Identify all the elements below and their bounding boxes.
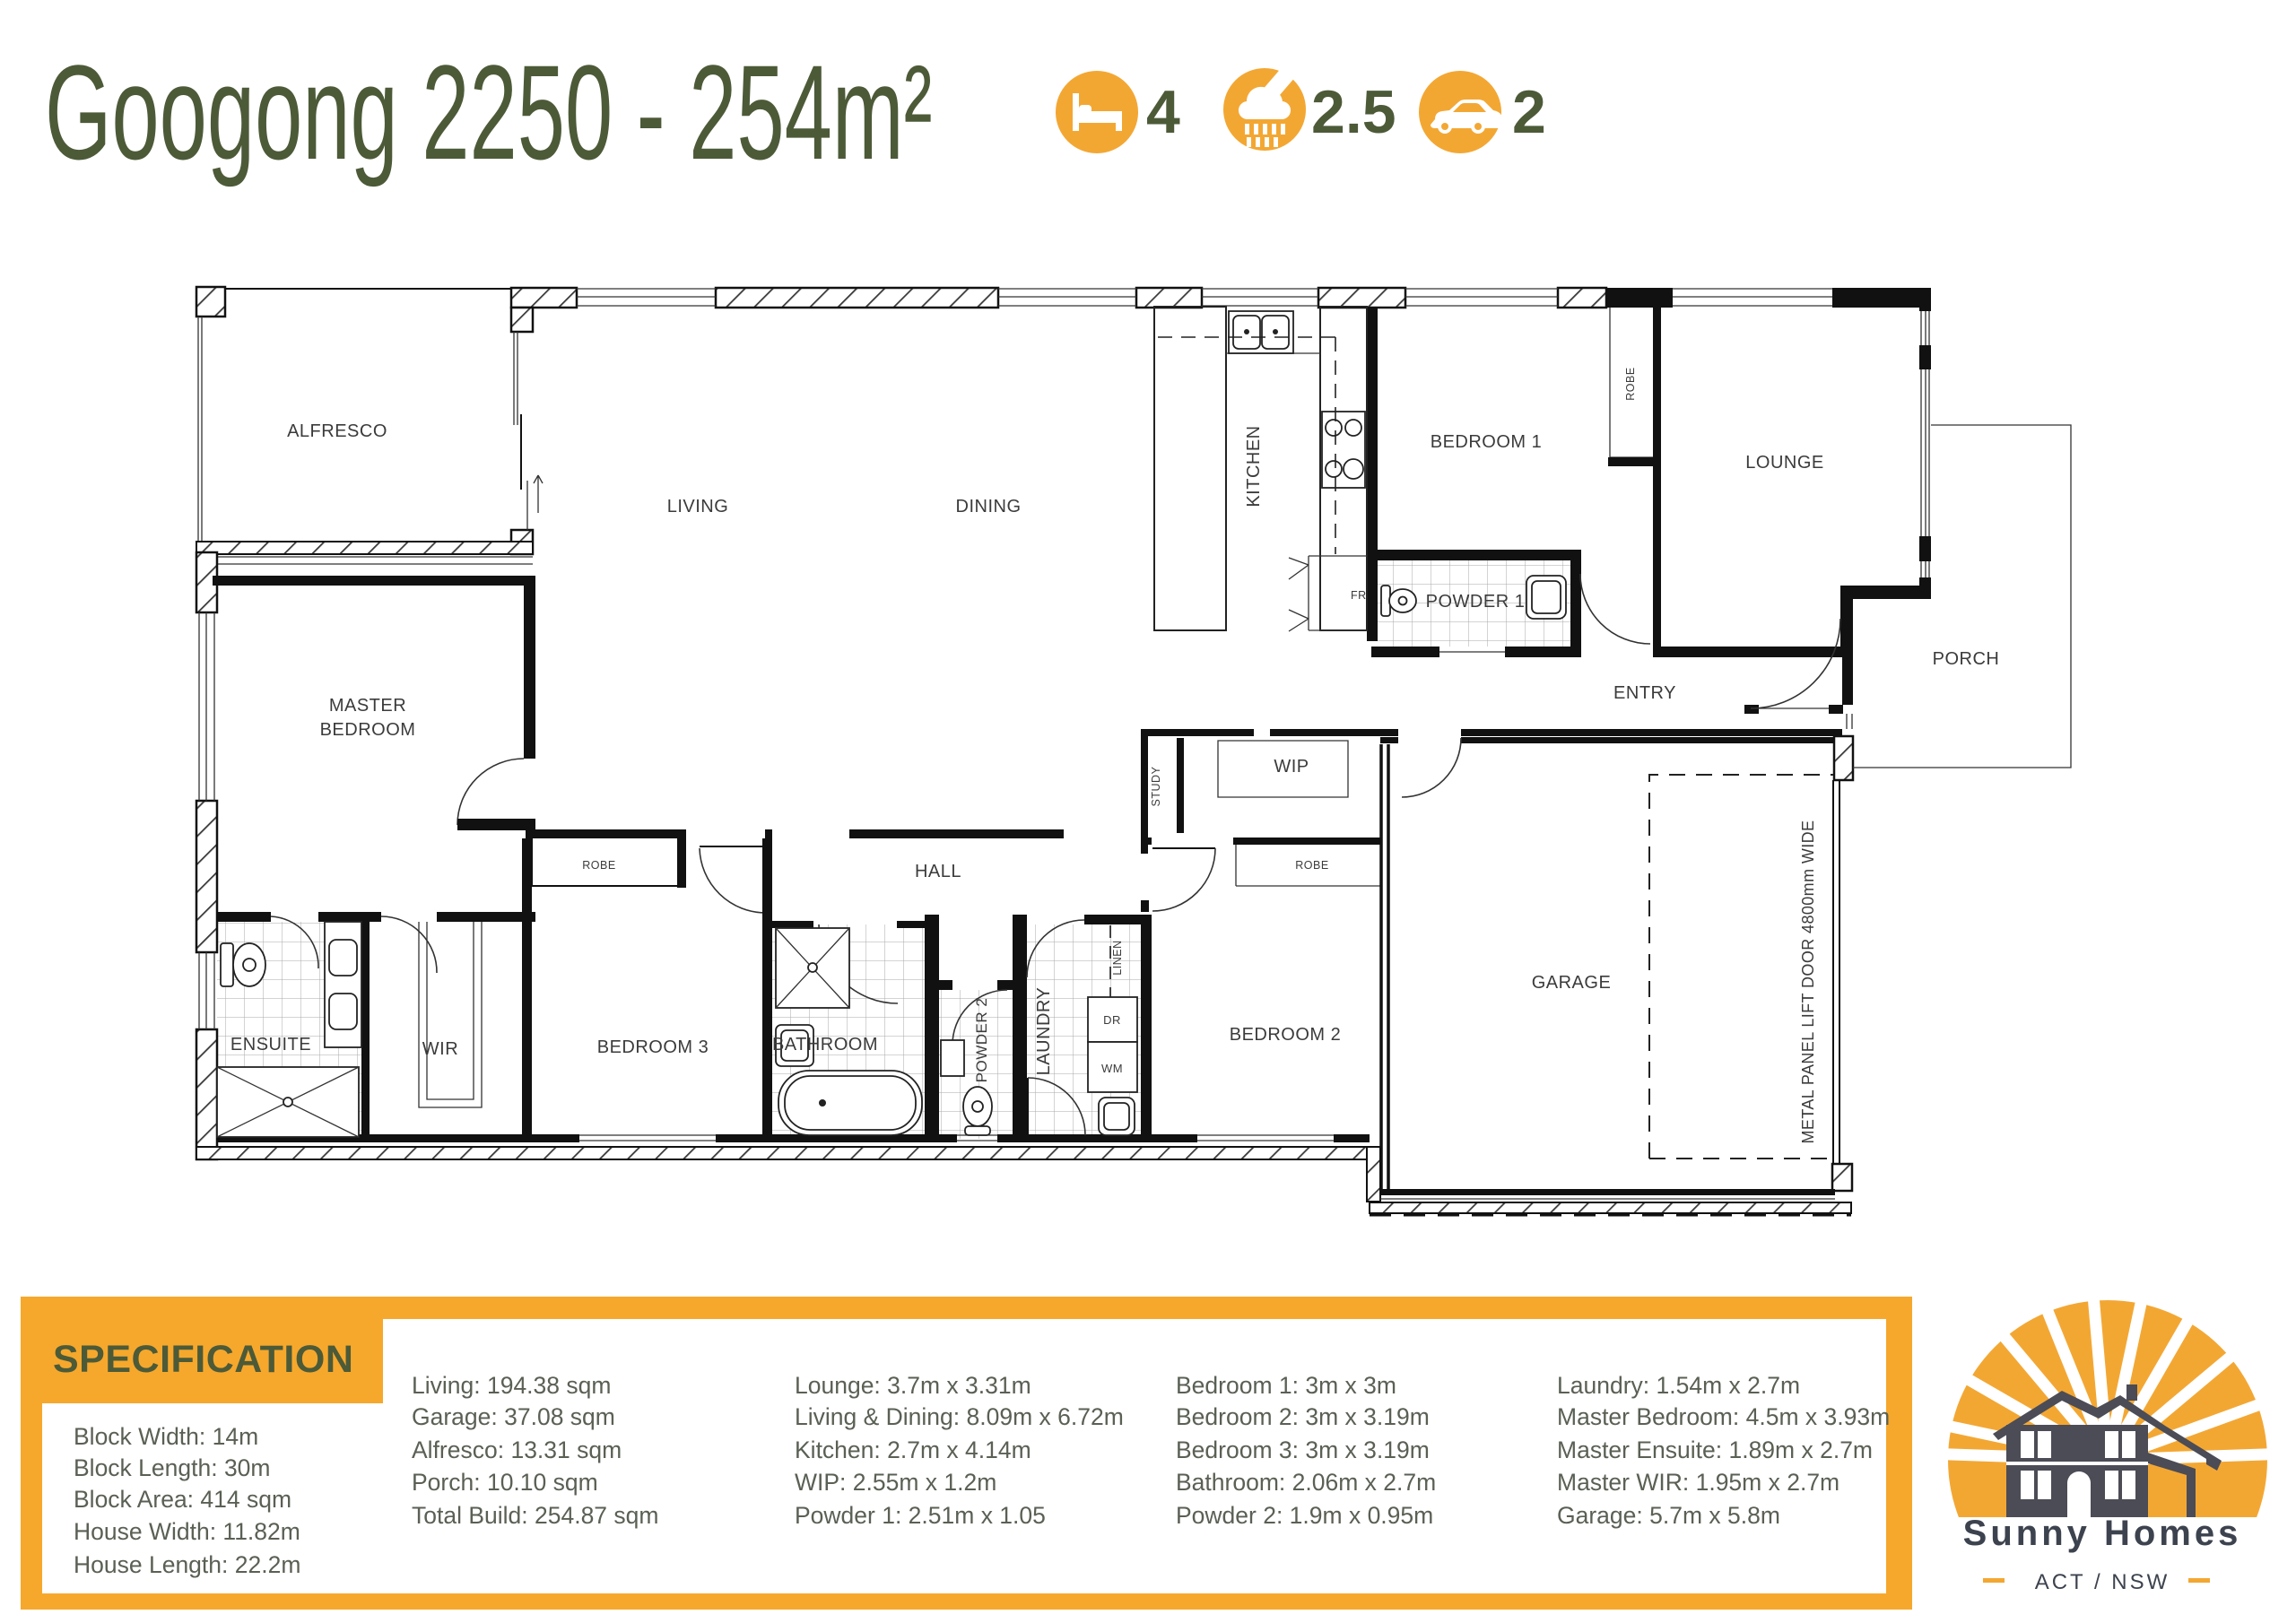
svg-text:STUDY: STUDY [1150,766,1162,806]
svg-text:WIP: WIP [1274,757,1309,777]
svg-text:POWDER 1: POWDER 1 [1426,592,1526,612]
svg-text:Kitchen: 2.7m x 4.14m: Kitchen: 2.7m x 4.14m [795,1436,1031,1463]
svg-text:ENSUITE: ENSUITE [230,1035,311,1055]
svg-text:Block Width: 14m: Block Width: 14m [74,1423,258,1450]
svg-text:Powder 2: 1.9m x 0.95m: Powder 2: 1.9m x 0.95m [1176,1502,1433,1529]
svg-text:WM: WM [1101,1062,1123,1075]
svg-text:Garage: 5.7m x 5.8m: Garage: 5.7m x 5.8m [1557,1502,1780,1529]
svg-text:PORCH: PORCH [1933,649,2000,669]
svg-text:ACT / NSW: ACT / NSW [2035,1570,2170,1594]
svg-text:Lounge: 3.7m x 3.31m: Lounge: 3.7m x 3.31m [795,1372,1031,1399]
svg-text:Garage: 37.08 sqm: Garage: 37.08 sqm [412,1403,615,1430]
svg-text:ALFRESCO: ALFRESCO [287,421,387,441]
svg-text:Googong 2250 - 254m²: Googong 2250 - 254m² [45,37,932,187]
svg-text:BEDROOM: BEDROOM [320,720,416,740]
svg-text:Sunny Homes: Sunny Homes [1963,1514,2242,1553]
svg-text:Living & Dining: 8.09m x 6.72m: Living & Dining: 8.09m x 6.72m [795,1403,1124,1430]
svg-text:Master Ensuite: 1.89m x 2.7m: Master Ensuite: 1.89m x 2.7m [1557,1436,1873,1463]
svg-text:ROBE: ROBE [582,859,615,872]
svg-text:MASTER: MASTER [329,696,406,716]
svg-text:BEDROOM 2: BEDROOM 2 [1230,1025,1342,1045]
svg-text:POWDER 2: POWDER 2 [973,998,990,1083]
svg-text:WIP: 2.55m x 1.2m: WIP: 2.55m x 1.2m [795,1469,996,1496]
svg-text:LIVING: LIVING [667,497,729,516]
svg-text:DR: DR [1103,1013,1121,1027]
svg-text:Alfresco: 13.31 sqm: Alfresco: 13.31 sqm [412,1436,622,1463]
svg-text:DINING: DINING [956,497,1022,516]
svg-text:Laundry: 1.54m x 2.7m: Laundry: 1.54m x 2.7m [1557,1372,1800,1399]
svg-text:Master WIR: 1.95m x 2.7m: Master WIR: 1.95m x 2.7m [1557,1469,1839,1496]
svg-text:House Length: 22.2m: House Length: 22.2m [74,1551,300,1578]
svg-text:HALL: HALL [915,862,961,881]
svg-text:Bathroom: 2.06m x 2.7m: Bathroom: 2.06m x 2.7m [1176,1469,1436,1496]
svg-text:GARAGE: GARAGE [1532,973,1612,993]
svg-text:BATHROOM: BATHROOM [772,1035,878,1055]
svg-text:ENTRY: ENTRY [1613,683,1676,703]
svg-text:BEDROOM 1: BEDROOM 1 [1431,432,1543,452]
svg-text:LINEN: LINEN [1111,940,1124,975]
svg-text:Bedroom 1: 3m x 3m: Bedroom 1: 3m x 3m [1176,1372,1396,1399]
svg-text:ROBE: ROBE [1624,367,1637,400]
svg-text:2: 2 [1512,78,1546,146]
svg-text:Porch: 10.10 sqm: Porch: 10.10 sqm [412,1469,598,1496]
svg-text:Block Area: 414 sqm: Block Area: 414 sqm [74,1486,291,1513]
svg-text:FR: FR [1351,589,1367,602]
svg-text:House Width: 11.82m: House Width: 11.82m [74,1518,300,1545]
svg-text:LOUNGE: LOUNGE [1745,453,1823,473]
svg-text:4: 4 [1146,78,1180,146]
svg-text:BEDROOM 3: BEDROOM 3 [597,1037,709,1057]
svg-text:2.5: 2.5 [1311,78,1396,146]
svg-text:Powder 1: 2.51m x 1.05: Powder 1: 2.51m x 1.05 [795,1502,1046,1529]
svg-text:SPECIFICATION: SPECIFICATION [53,1338,353,1381]
svg-text:Bedroom 3: 3m x 3.19m: Bedroom 3: 3m x 3.19m [1176,1436,1430,1463]
svg-text:Total Build: 254.87 sqm: Total Build: 254.87 sqm [412,1502,658,1529]
svg-text:METAL PANEL LIFT DOOR 4800mm W: METAL PANEL LIFT DOOR 4800mm WIDE [1799,820,1817,1144]
svg-text:Master Bedroom: 4.5m x 3.93m: Master Bedroom: 4.5m x 3.93m [1557,1403,1890,1430]
svg-text:ROBE: ROBE [1295,859,1328,872]
svg-text:WIR: WIR [422,1039,458,1059]
svg-text:Block Length: 30m: Block Length: 30m [74,1454,271,1481]
svg-text:Living: 194.38 sqm: Living: 194.38 sqm [412,1372,611,1399]
svg-text:LAUNDRY: LAUNDRY [1034,987,1054,1076]
svg-text:Bedroom 2: 3m x 3.19m: Bedroom 2: 3m x 3.19m [1176,1403,1430,1430]
svg-text:KITCHEN: KITCHEN [1244,425,1264,507]
